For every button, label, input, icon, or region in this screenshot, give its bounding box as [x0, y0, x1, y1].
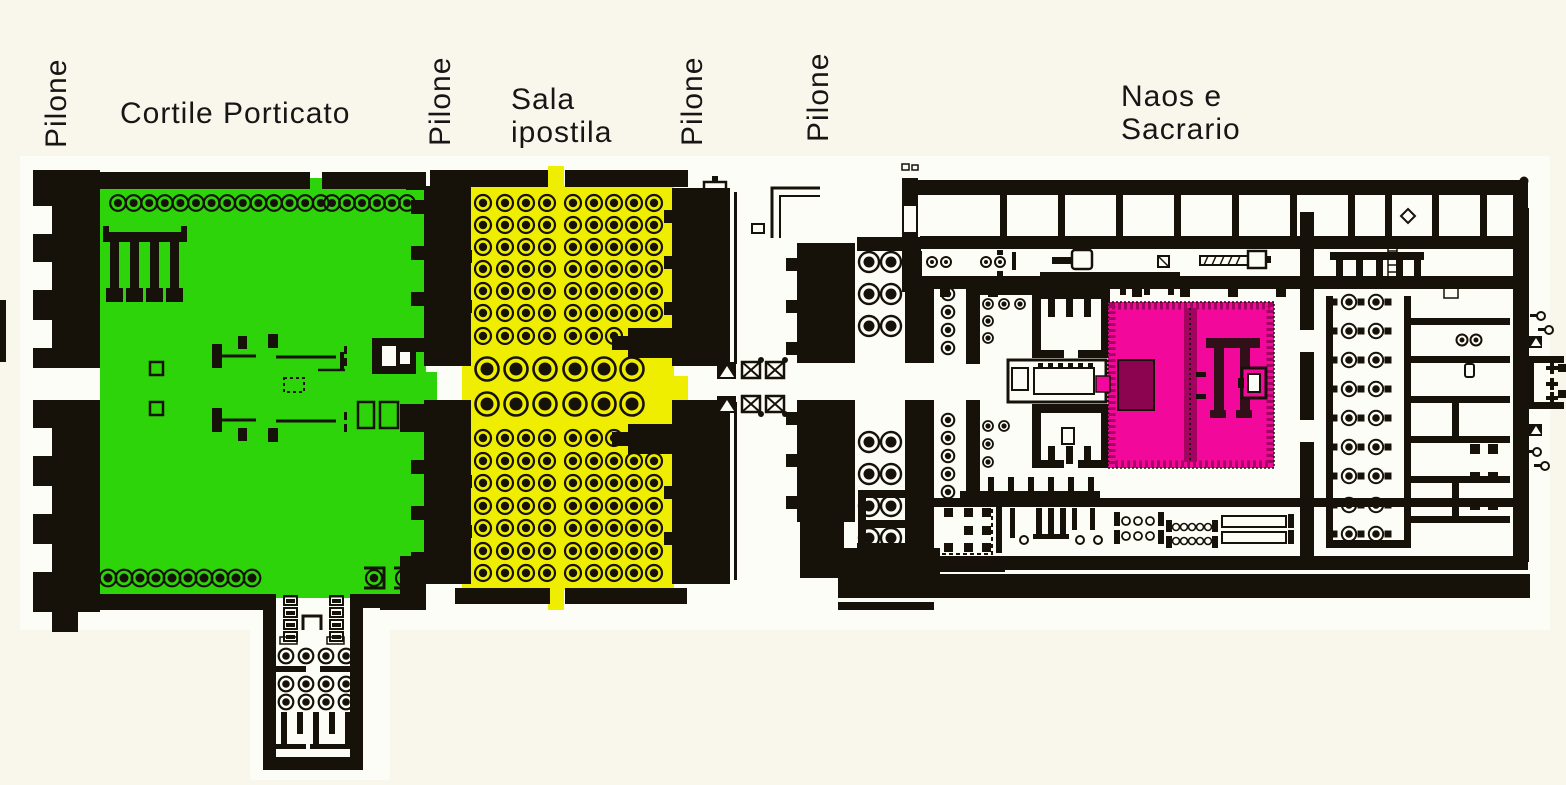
naos-sacrario	[1096, 302, 1274, 468]
label-pilone-2: Pilone	[424, 46, 458, 156]
bark-shrine	[1008, 360, 1106, 402]
label-pilone-4: Pilone	[802, 42, 836, 152]
label-pilone-1: Pilone	[40, 48, 74, 158]
label-pilone-3: Pilone	[676, 46, 710, 156]
label-sala-ipostila: Sala ipostila	[511, 83, 612, 149]
label-cortile-porticato: Cortile Porticato	[120, 97, 350, 130]
east-mid-wall	[1300, 212, 1314, 562]
label-naos-sacrario: Naos e Sacrario	[1121, 80, 1241, 146]
temple-plan-figure: Pilone Cortile Porticato Pilone Sala ipo…	[0, 0, 1566, 785]
